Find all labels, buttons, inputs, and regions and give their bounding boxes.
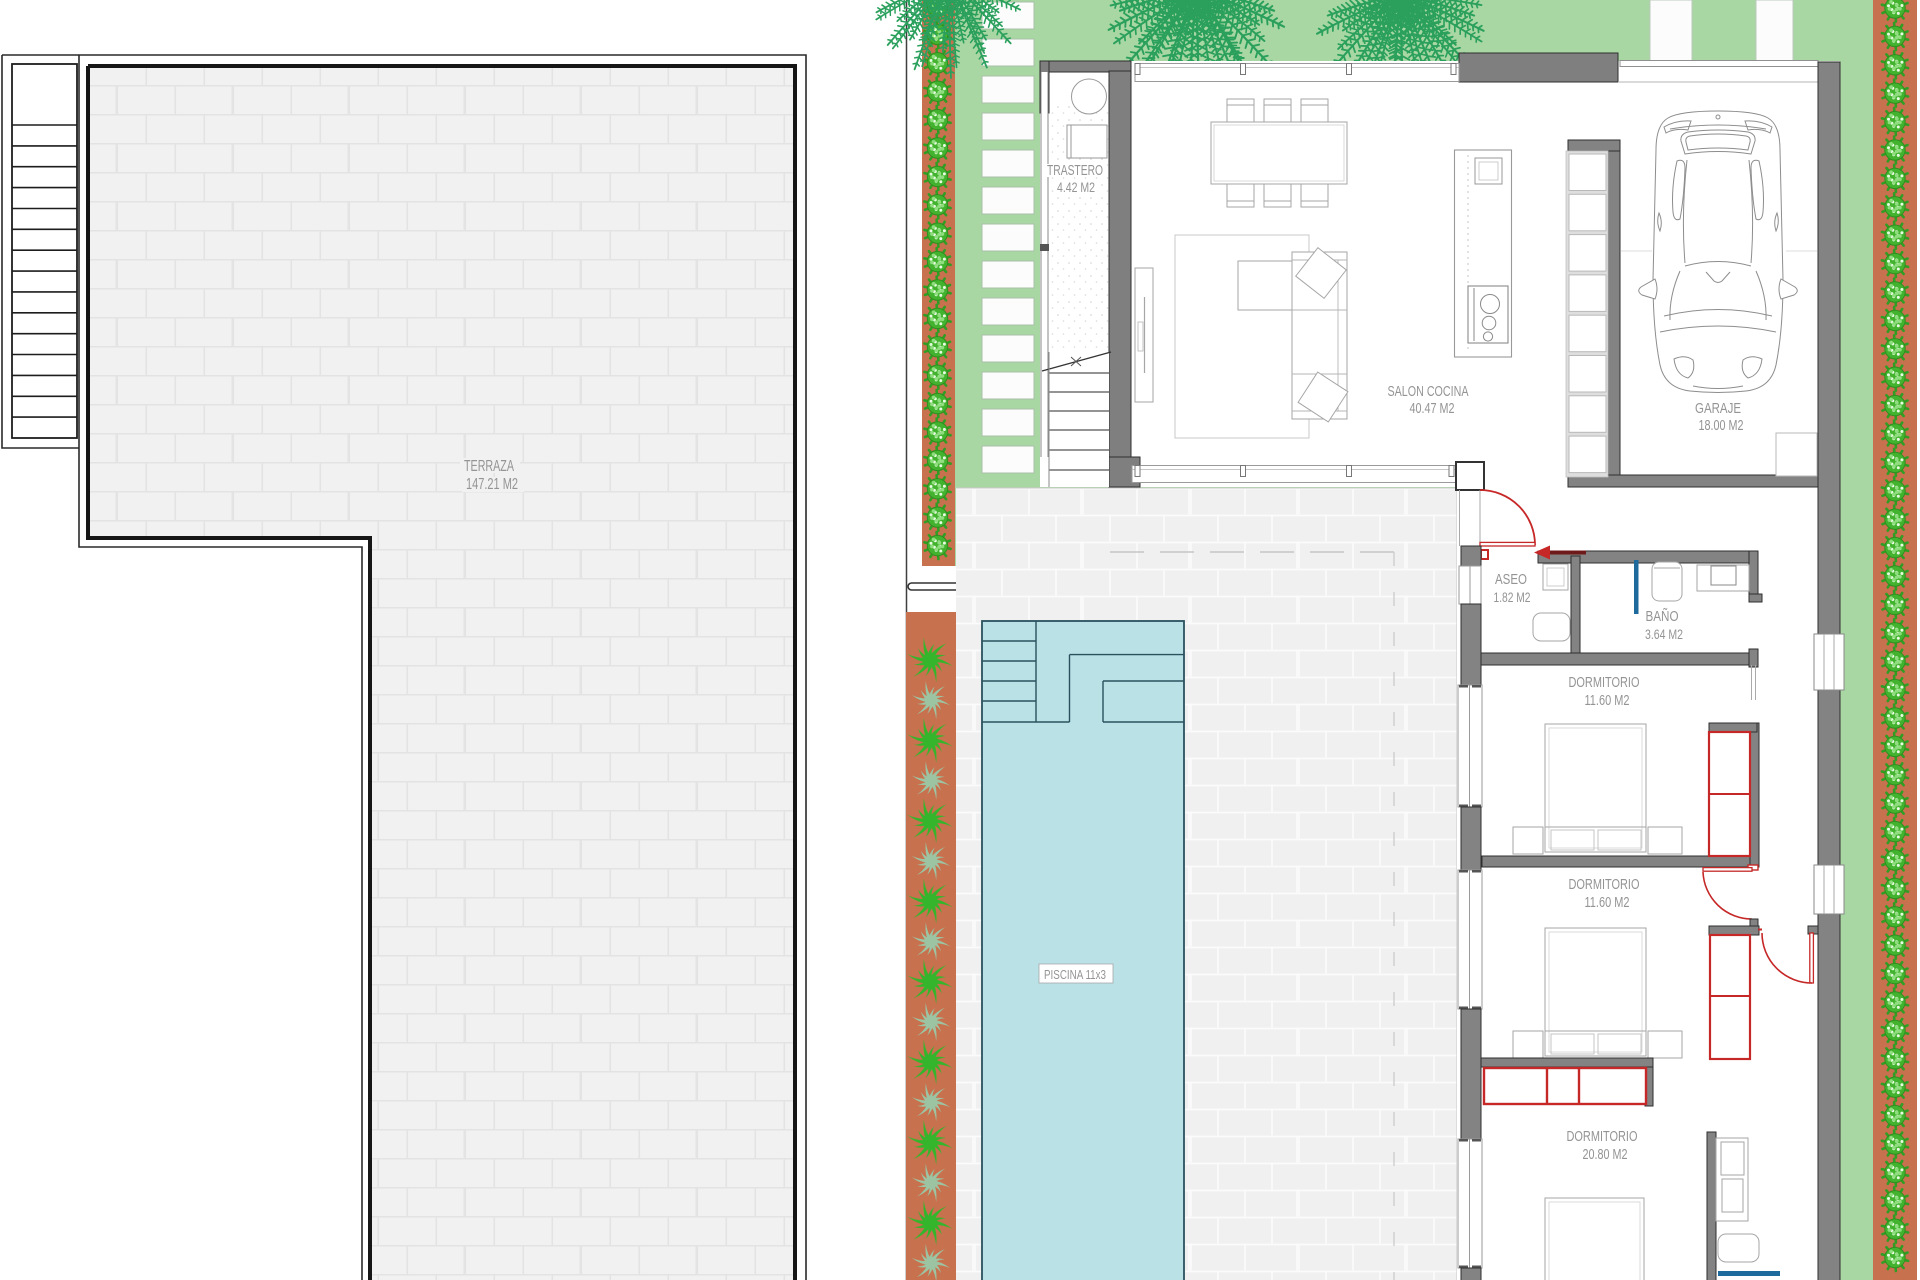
svg-text:DORMITORIO: DORMITORIO: [1569, 876, 1640, 893]
svg-text:GARAJE: GARAJE: [1695, 400, 1741, 417]
svg-text:DORMITORIO: DORMITORIO: [1569, 674, 1640, 691]
svg-text:3.64 M2: 3.64 M2: [1645, 626, 1683, 642]
svg-text:DORMITORIO: DORMITORIO: [1567, 1128, 1638, 1145]
svg-text:PISCINA 11x3: PISCINA 11x3: [1044, 968, 1106, 982]
svg-text:11.60 M2: 11.60 M2: [1585, 693, 1630, 709]
svg-text:ASEO: ASEO: [1495, 572, 1527, 588]
svg-text:11.60 M2: 11.60 M2: [1585, 895, 1630, 911]
svg-text:TERRAZA: TERRAZA: [464, 458, 514, 475]
svg-text:BAÑO: BAÑO: [1646, 608, 1679, 625]
svg-text:1.82 M2: 1.82 M2: [1494, 589, 1531, 605]
svg-text:20.80 M2: 20.80 M2: [1583, 1147, 1628, 1163]
svg-text:40.47 M2: 40.47 M2: [1410, 401, 1455, 417]
svg-text:TRASTERO: TRASTERO: [1047, 163, 1103, 179]
svg-text:147.21 M2: 147.21 M2: [466, 476, 518, 493]
svg-text:4.42 M2: 4.42 M2: [1057, 179, 1095, 195]
svg-text:18.00 M2: 18.00 M2: [1699, 418, 1744, 434]
svg-text:SALON COCINA: SALON COCINA: [1388, 383, 1469, 400]
